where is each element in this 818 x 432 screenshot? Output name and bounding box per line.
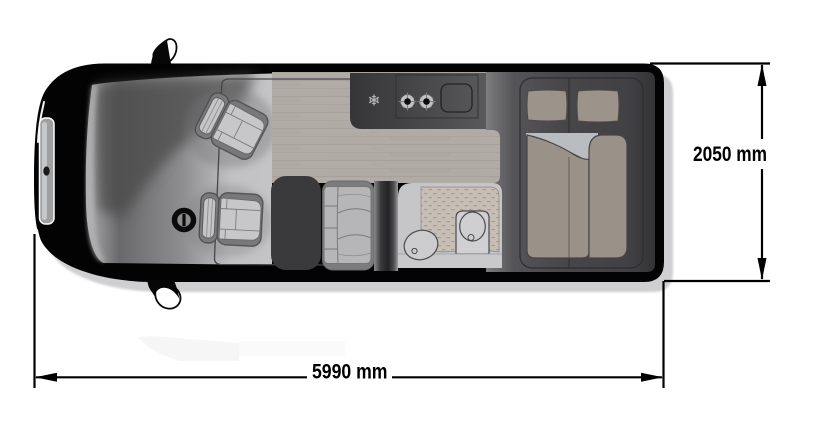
svg-text:2050 mm: 2050 mm <box>693 143 767 166</box>
svg-text:5990 mm: 5990 mm <box>312 361 388 384</box>
